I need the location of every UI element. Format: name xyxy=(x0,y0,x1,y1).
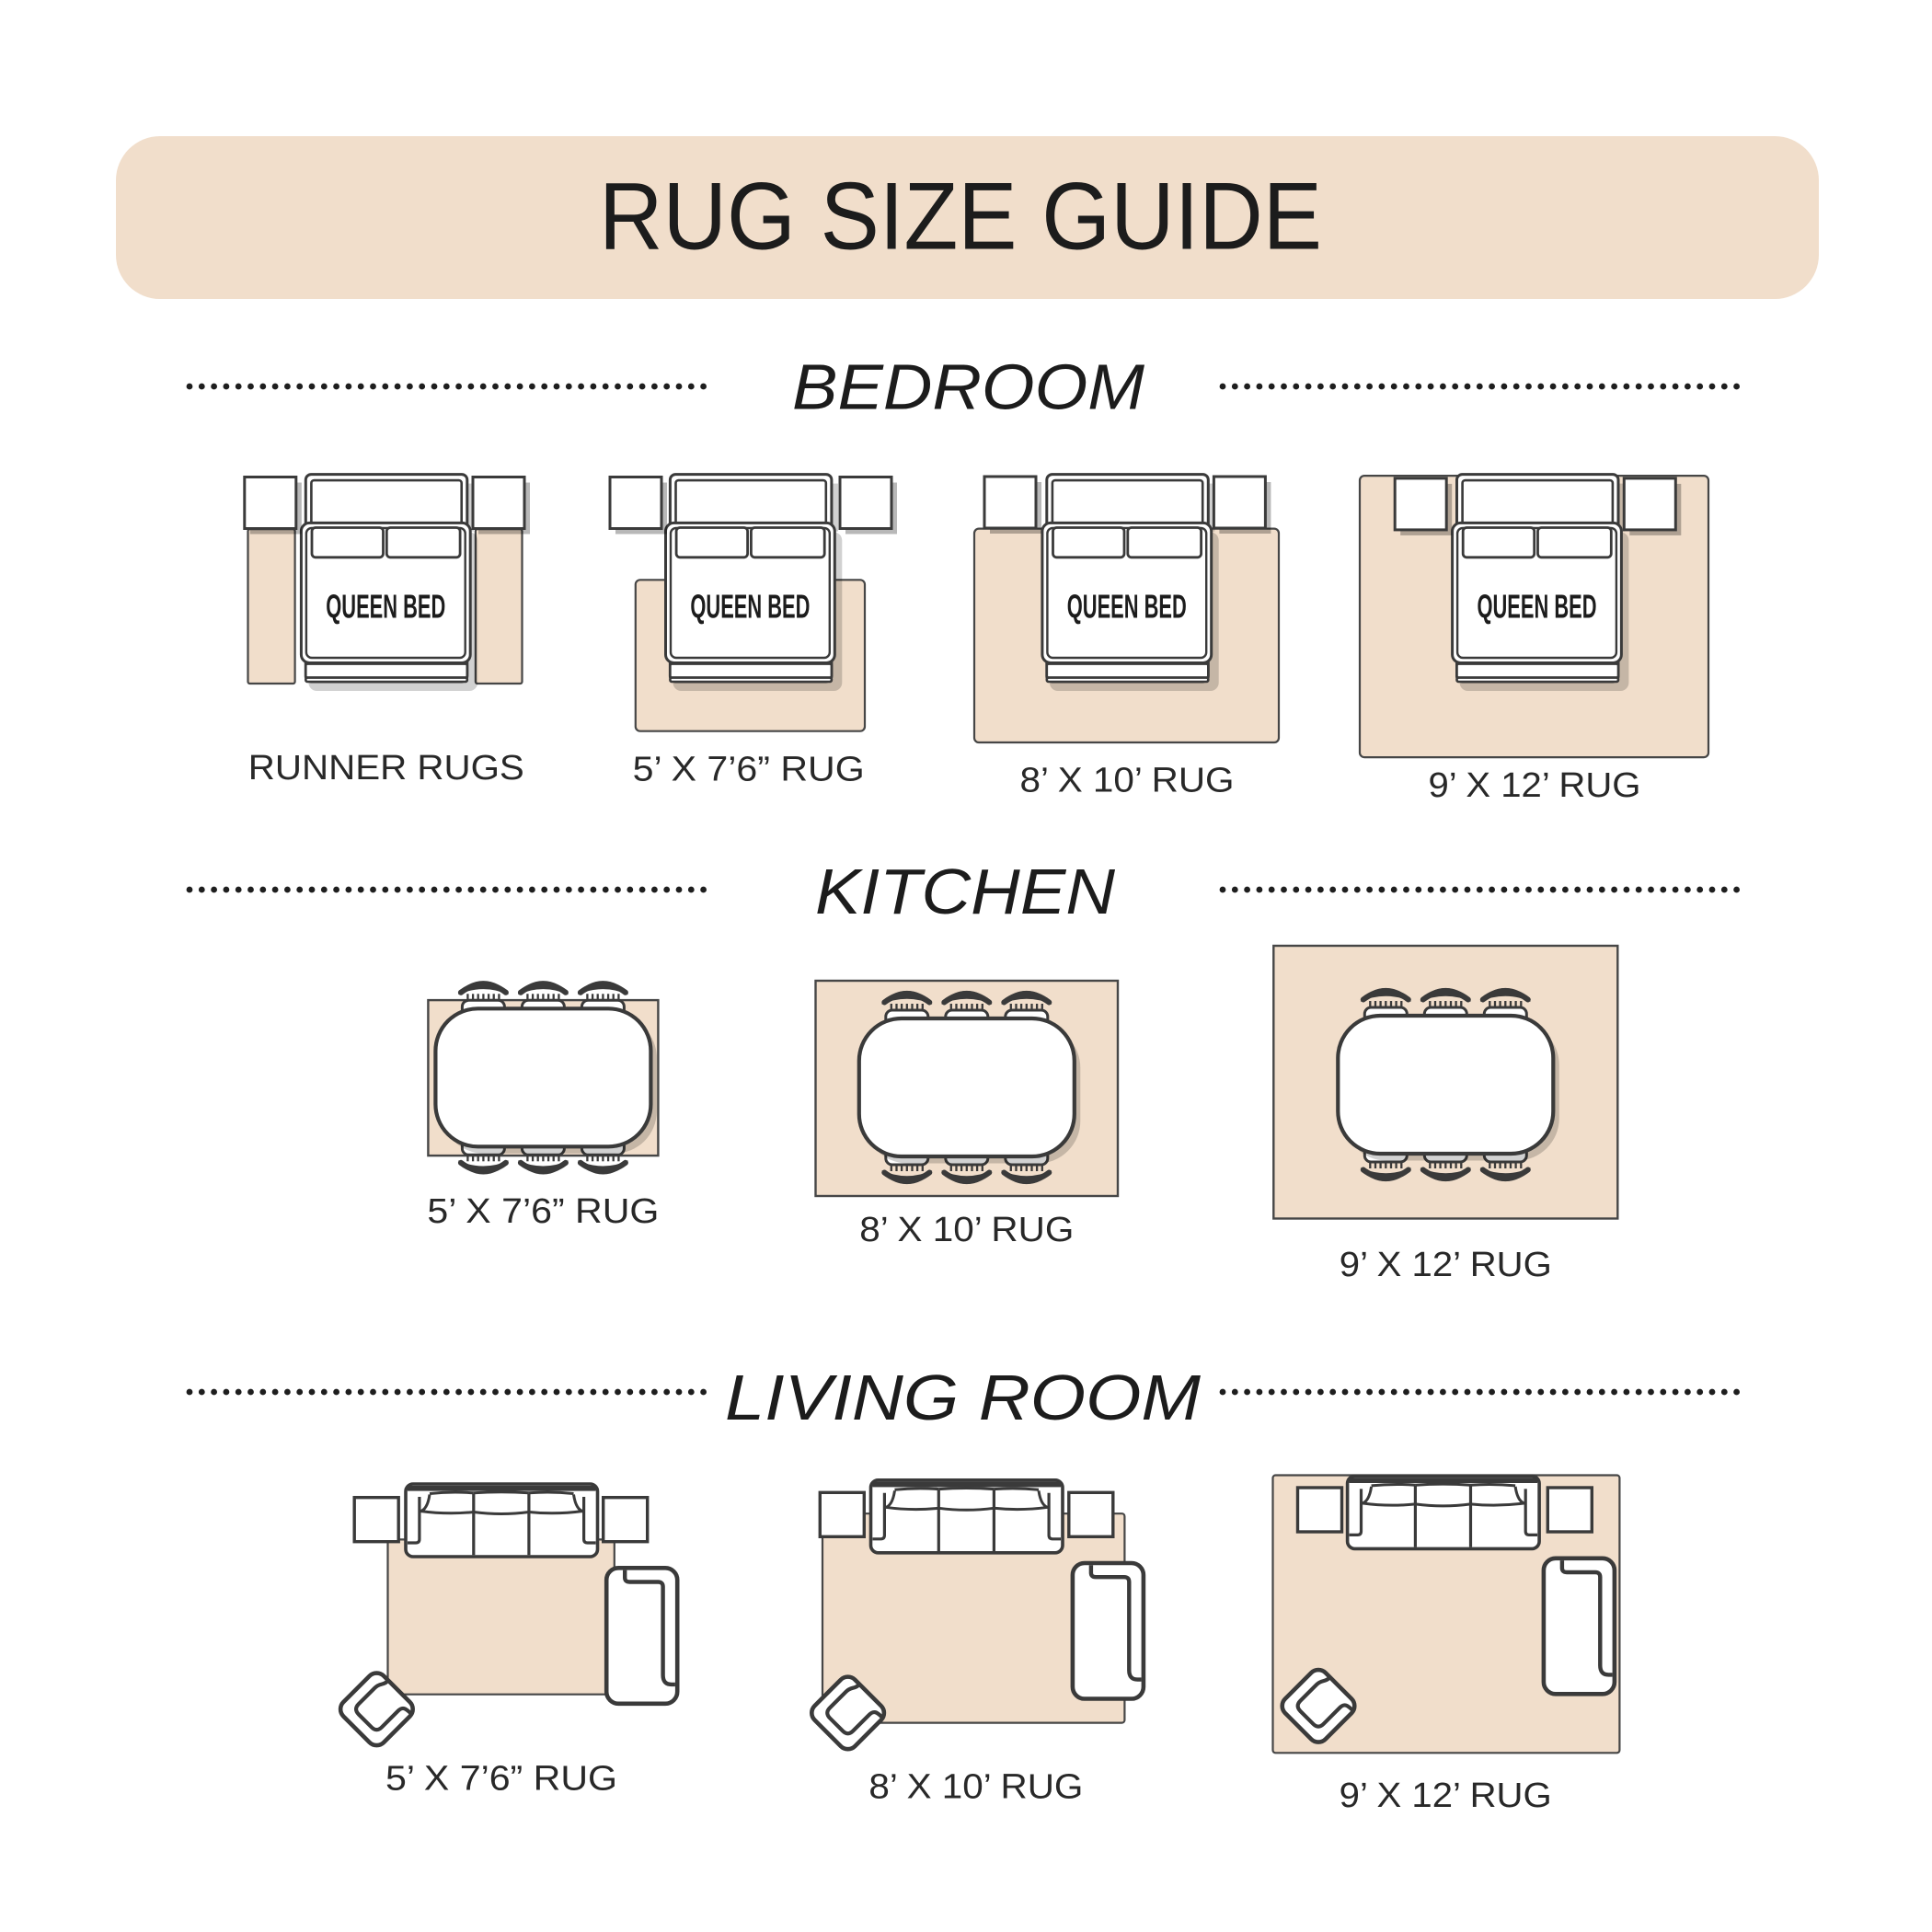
svg-text:9’ X 12’ RUG: 9’ X 12’ RUG xyxy=(1340,1777,1552,1815)
svg-text:5’ X 7’6” RUG: 5’ X 7’6” RUG xyxy=(427,1192,659,1231)
svg-text:8’ X 10’ RUG: 8’ X 10’ RUG xyxy=(868,1768,1083,1807)
svg-text:RUG SIZE GUIDE: RUG SIZE GUIDE xyxy=(599,163,1322,270)
svg-text:9’ X 12’ RUG: 9’ X 12’ RUG xyxy=(1340,1246,1552,1284)
svg-text:RUNNER RUGS: RUNNER RUGS xyxy=(248,749,524,788)
svg-text:9’ X 12’ RUG: 9’ X 12’ RUG xyxy=(1429,766,1641,805)
svg-text:8’ X 10’ RUG: 8’ X 10’ RUG xyxy=(1020,762,1235,800)
svg-text:LIVING ROOM: LIVING ROOM xyxy=(725,1362,1202,1433)
svg-text:8’ X 10’ RUG: 8’ X 10’ RUG xyxy=(859,1211,1074,1249)
svg-text:KITCHEN: KITCHEN xyxy=(815,856,1115,927)
svg-text:5’ X 7’6” RUG: 5’ X 7’6” RUG xyxy=(633,751,865,789)
svg-text:BEDROOM: BEDROOM xyxy=(792,351,1145,423)
svg-text:5’ X 7’6” RUG: 5’ X 7’6” RUG xyxy=(385,1759,617,1798)
